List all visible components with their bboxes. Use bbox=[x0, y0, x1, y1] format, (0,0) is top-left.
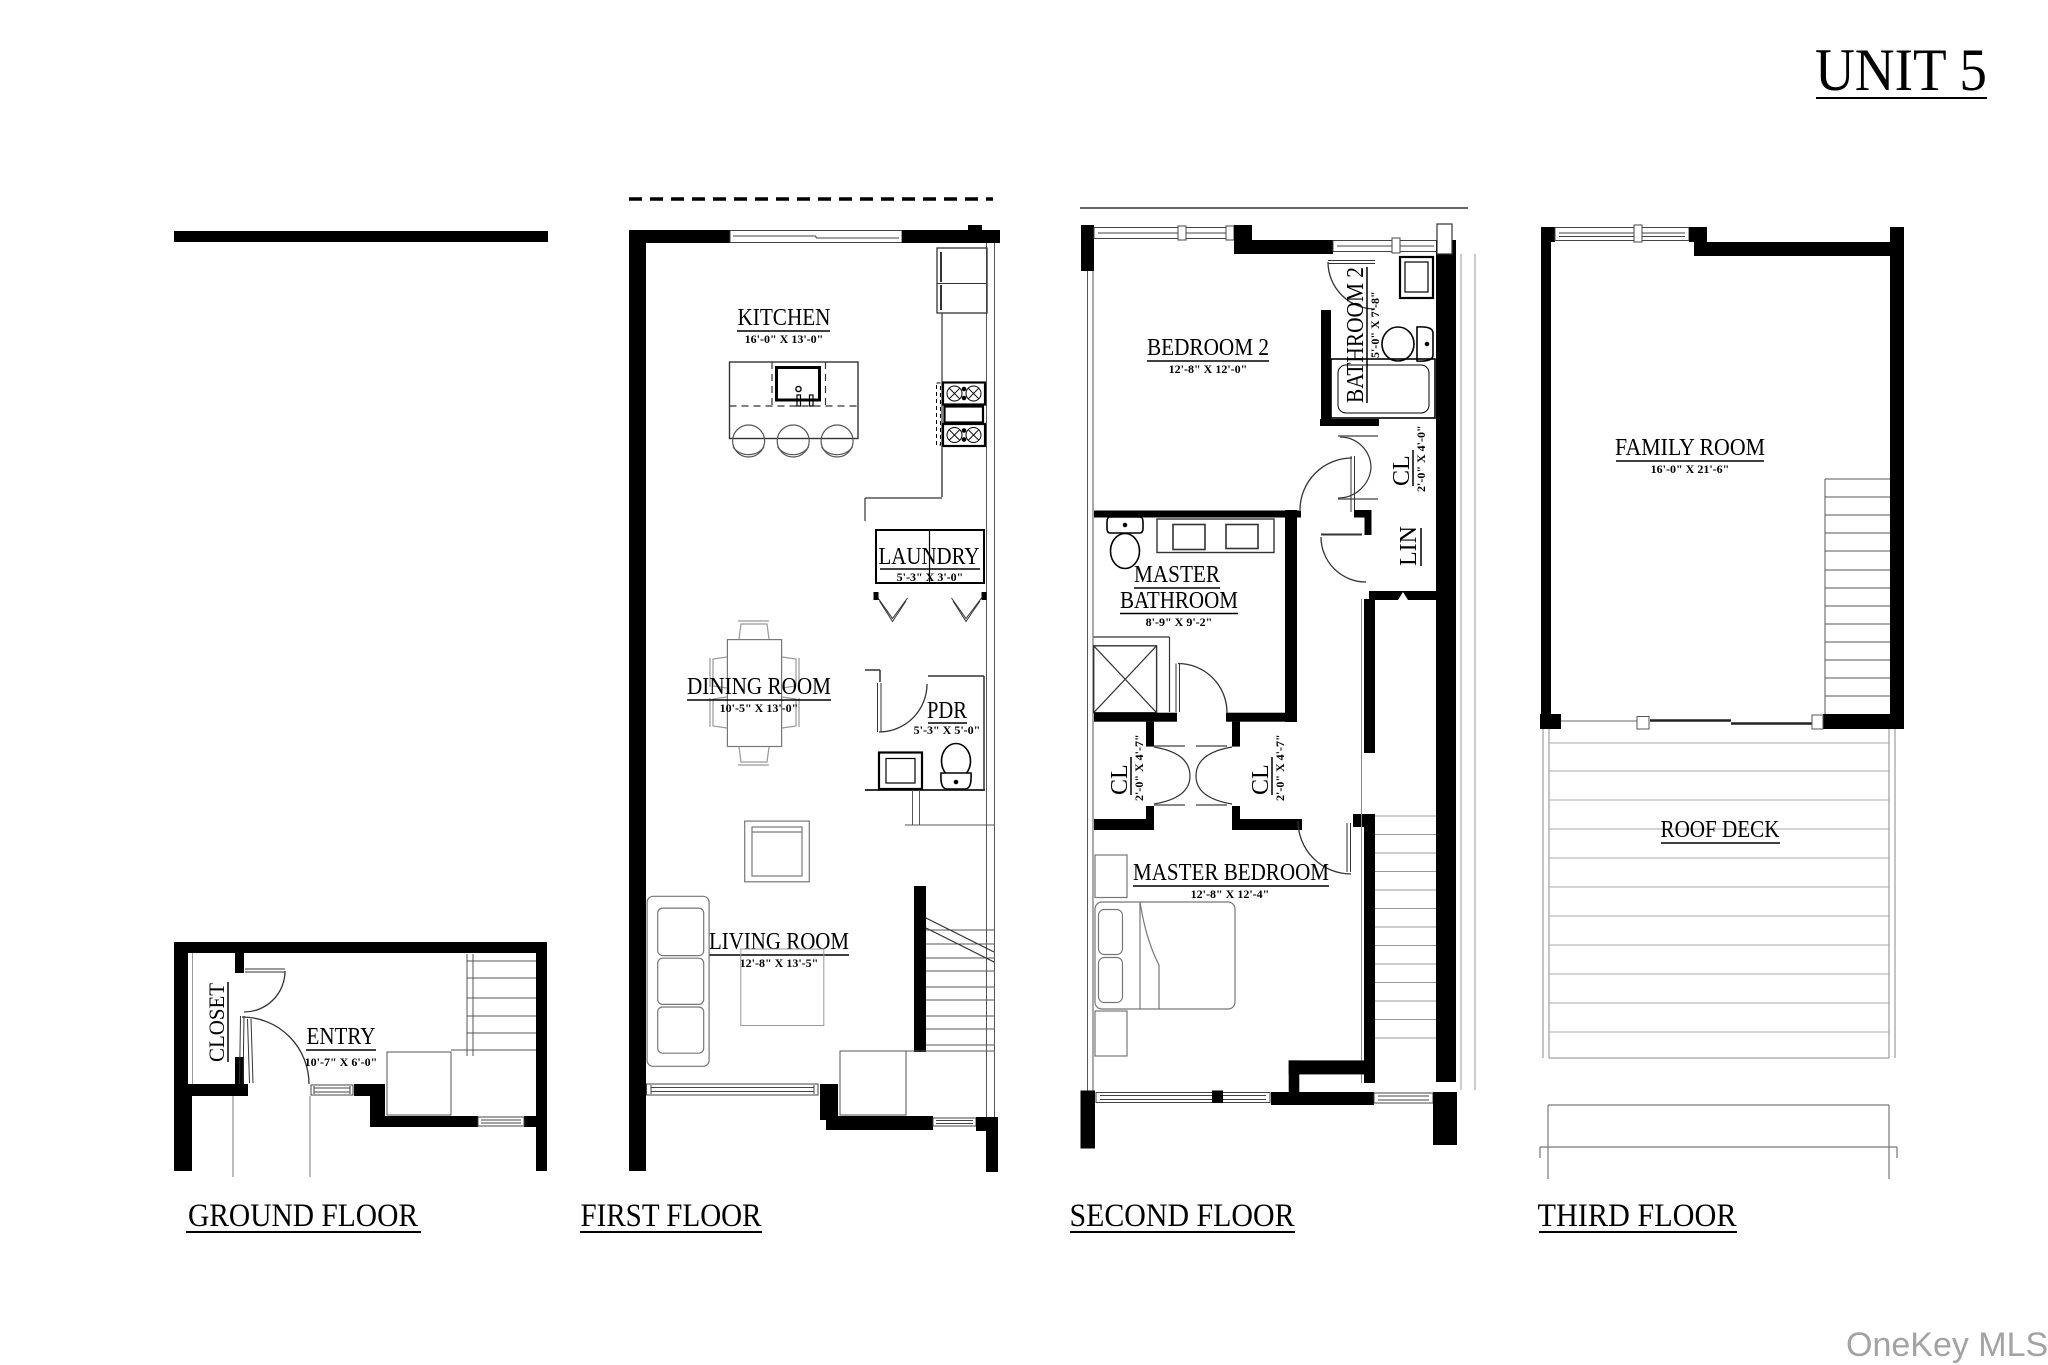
svg-text:MASTER BEDROOM: MASTER BEDROOM bbox=[1133, 860, 1329, 886]
svg-text:LIVING ROOM: LIVING ROOM bbox=[709, 929, 849, 955]
svg-text:KITCHEN: KITCHEN bbox=[738, 305, 831, 331]
svg-text:5'-0" X 7'-8": 5'-0" X 7'-8" bbox=[1368, 291, 1382, 358]
svg-text:10'-5" X 13'-0": 10'-5" X 13'-0" bbox=[720, 701, 799, 715]
svg-text:8'-9" X 9'-2": 8'-9" X 9'-2" bbox=[1146, 615, 1213, 629]
svg-text:CLOSET: CLOSET bbox=[204, 982, 229, 1062]
svg-text:SECOND FLOOR: SECOND FLOOR bbox=[1070, 1198, 1295, 1234]
svg-text:CL: CL bbox=[1248, 764, 1274, 795]
svg-text:ENTRY: ENTRY bbox=[307, 1024, 376, 1050]
svg-text:BEDROOM 2: BEDROOM 2 bbox=[1147, 335, 1269, 361]
svg-text:16'-0" X 21'-6": 16'-0" X 21'-6" bbox=[1651, 462, 1730, 476]
svg-text:16'-0" X 13'-0": 16'-0" X 13'-0" bbox=[745, 332, 824, 346]
svg-text:UNIT 5: UNIT 5 bbox=[1815, 37, 1987, 103]
svg-text:CL: CL bbox=[1389, 455, 1415, 486]
svg-text:12'-8" X 12'-0": 12'-8" X 12'-0" bbox=[1169, 362, 1248, 376]
svg-text:MASTER: MASTER bbox=[1134, 562, 1220, 588]
svg-text:FIRST FLOOR: FIRST FLOOR bbox=[581, 1198, 762, 1234]
svg-text:5'-3" X 5'-0": 5'-3" X 5'-0" bbox=[914, 723, 981, 737]
svg-text:FAMILY ROOM: FAMILY ROOM bbox=[1615, 435, 1765, 461]
svg-text:12'-8" X 12'-4": 12'-8" X 12'-4" bbox=[1191, 887, 1270, 901]
svg-text:BATHROOM: BATHROOM bbox=[1120, 588, 1238, 614]
svg-text:OneKey MLS: OneKey MLS bbox=[1846, 1326, 2048, 1364]
svg-text:PDR: PDR bbox=[927, 698, 967, 724]
svg-text:2'-0" X 4'-0": 2'-0" X 4'-0" bbox=[1414, 425, 1428, 492]
svg-text:10'-7" X 6'-0": 10'-7" X 6'-0" bbox=[305, 1055, 378, 1069]
svg-text:GROUND FLOOR: GROUND FLOOR bbox=[188, 1198, 418, 1234]
svg-text:CL: CL bbox=[1107, 764, 1133, 795]
svg-text:12'-8" X 13'-5": 12'-8" X 13'-5" bbox=[740, 956, 819, 970]
svg-text:LAUNDRY: LAUNDRY bbox=[879, 544, 980, 570]
svg-text:THIRD FLOOR: THIRD FLOOR bbox=[1538, 1198, 1737, 1234]
svg-text:BATHROOM 2: BATHROOM 2 bbox=[1343, 267, 1369, 403]
svg-text:5'-3" X 3'-0": 5'-3" X 3'-0" bbox=[897, 570, 964, 584]
svg-text:2'-0" X 4'-7": 2'-0" X 4'-7" bbox=[1132, 734, 1146, 801]
svg-text:2'-0" X 4'-7": 2'-0" X 4'-7" bbox=[1273, 734, 1287, 801]
svg-text:ROOF DECK: ROOF DECK bbox=[1661, 817, 1781, 843]
svg-text:LIN: LIN bbox=[1396, 526, 1422, 566]
svg-text:DINING ROOM: DINING ROOM bbox=[687, 674, 831, 700]
